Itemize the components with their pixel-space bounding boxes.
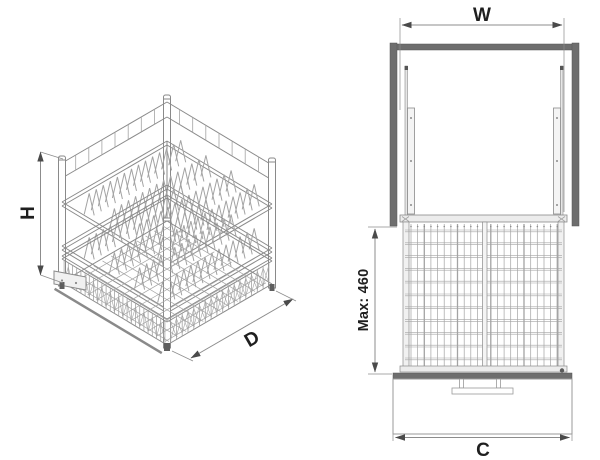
dim-height-label: H — [18, 206, 39, 220]
dim-depth-label: D — [241, 327, 263, 352]
dim-max-height-label: Max: 460 — [356, 269, 372, 332]
front-door-panel — [393, 373, 572, 434]
pull-down-wire-basket — [400, 215, 567, 373]
dim-width-label: W — [473, 5, 491, 26]
cabinet-carcass — [390, 43, 579, 226]
isometric-view — [41, 95, 297, 361]
front-view — [368, 18, 579, 441]
drawing-canvas: W H D Max: 460 C — [0, 0, 600, 460]
dish-rack-technical-drawing: W H D Max: 460 C — [0, 0, 600, 460]
dim-front-width-label: C — [476, 440, 490, 460]
telescopic-slides — [405, 66, 564, 216]
